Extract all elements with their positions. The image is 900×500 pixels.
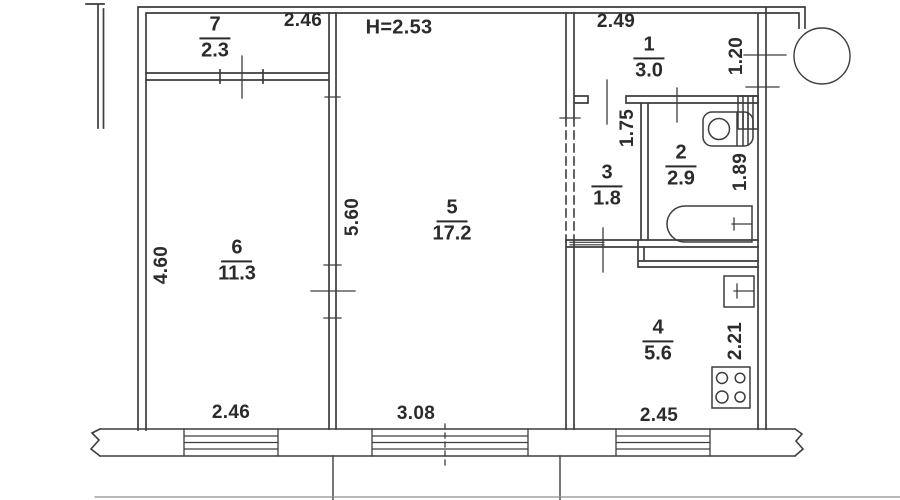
room-2-number: 2 [665,142,696,167]
room-7-area: 2.3 [201,39,229,62]
wall-hatch [570,242,604,245]
dim-left-height: 4.60 [151,246,173,284]
window-room6 [184,429,278,456]
balcony-lines [333,456,560,500]
height-note: Н=2.53 [366,17,433,40]
kitchen-sink-icon [724,276,754,307]
window-room5 [372,429,528,456]
dashed-partition [566,118,574,242]
vent-circle-icon [794,28,850,84]
dim-room5-height: 5.60 [342,198,364,236]
dim-entry-width: 1.20 [726,37,748,75]
dim-corridor: 1.75 [617,109,639,147]
dim-kitchen-height: 2.21 [725,322,747,360]
dim-top-right: 2.49 [597,11,635,33]
room-4-label: 4 5.6 [642,317,673,364]
room-2-area: 2.9 [667,167,695,190]
bathtub-icon [667,206,752,242]
room-5-label: 5 17.2 [433,197,472,244]
floorplan-page: Н=2.53 2.46 2.49 1.20 1.75 1.89 4.60 5.6… [0,0,900,500]
room-6-label: 6 11.3 [218,237,256,284]
room-3-number: 3 [591,162,622,187]
room-6-area: 11.3 [218,262,256,285]
dim-bottom-left: 2.46 [212,402,250,424]
room-4-number: 4 [642,317,673,342]
room-1-number: 1 [633,34,664,59]
floorplan-drawing [0,0,900,500]
room-7-label: 7 2.3 [199,14,230,61]
stove-icon [712,367,750,408]
room-5-number: 5 [436,197,467,222]
room-4-area: 5.6 [644,342,672,365]
room-7-number: 7 [199,14,230,39]
room-2-label: 2 2.9 [665,142,696,189]
dim-top-left: 2.46 [284,10,322,32]
room-3-area: 1.8 [593,187,621,210]
room-6-number: 6 [221,237,252,262]
dimension-ticks [242,55,786,318]
dim-bottom-middle: 3.08 [397,403,435,425]
room-1-label: 1 3.0 [633,34,664,81]
window-kitchen [616,429,710,456]
room-1-area: 3.0 [635,59,663,82]
room-3-label: 3 1.8 [591,162,622,209]
dim-bottom-right: 2.45 [640,405,678,427]
room-5-area: 17.2 [433,222,472,245]
dim-bath-height: 1.89 [730,153,752,191]
window-segments [184,429,710,456]
